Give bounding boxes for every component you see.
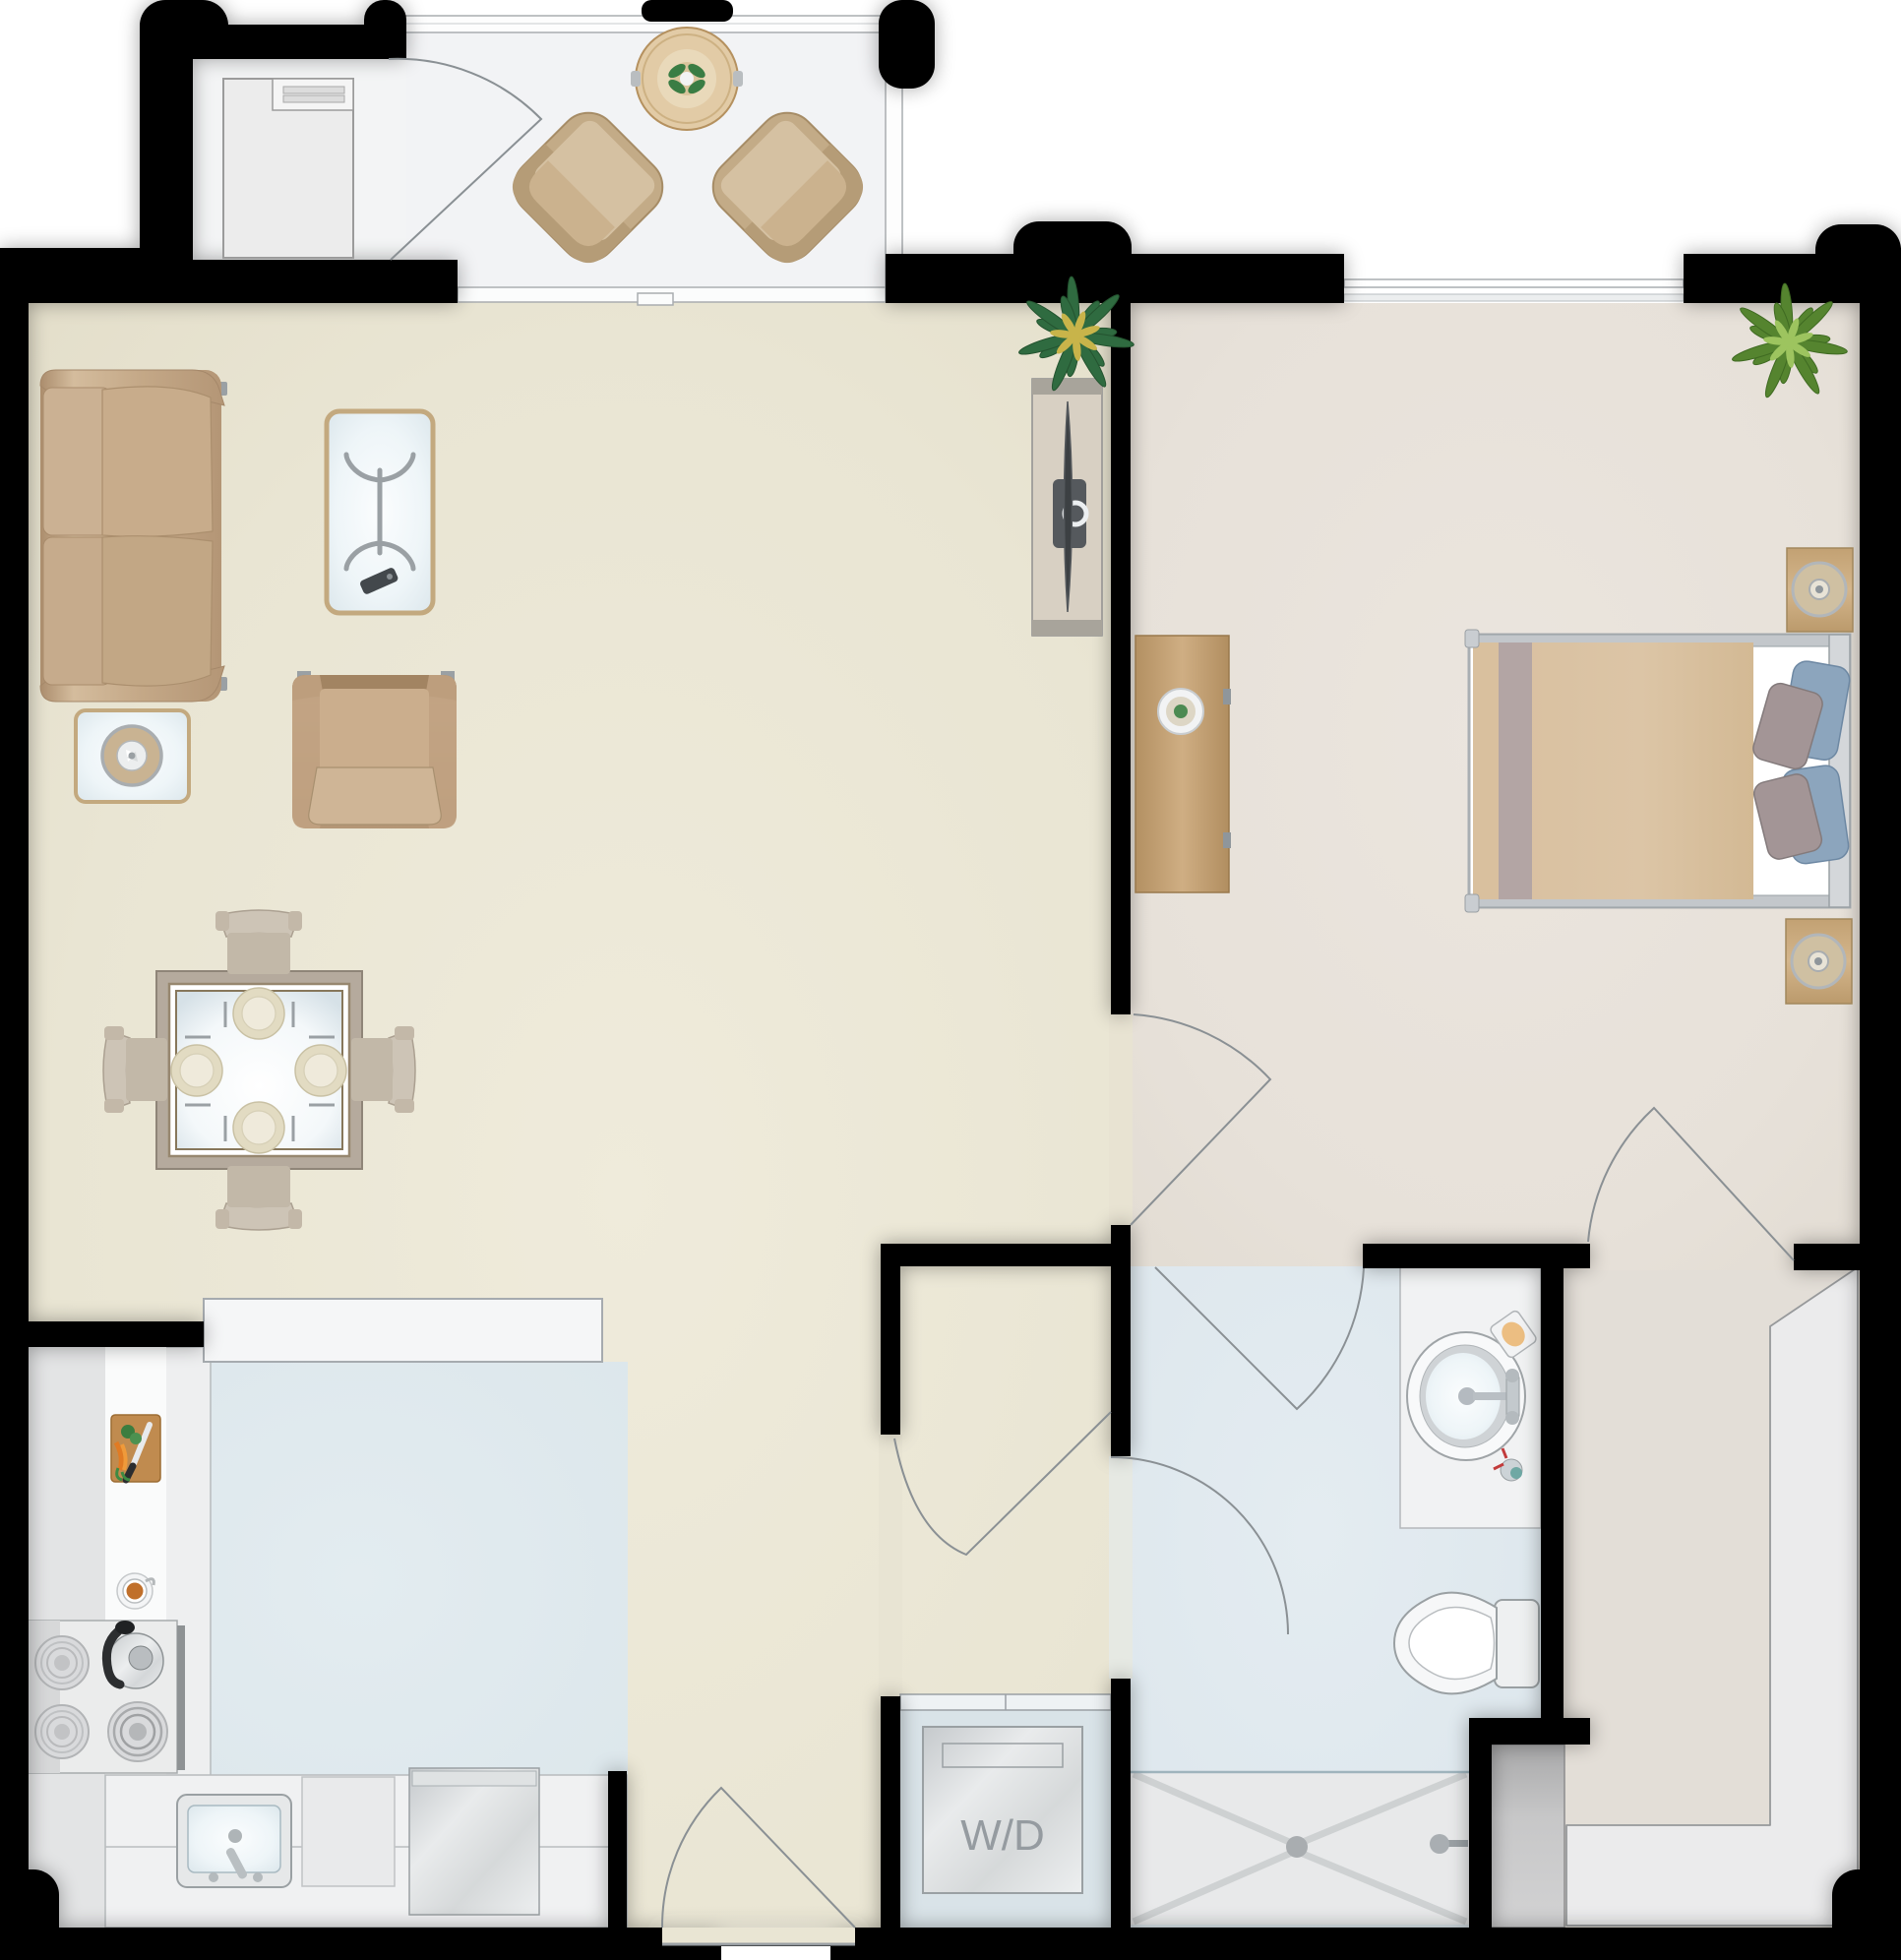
svg-text:W/D: W/D	[960, 1811, 1045, 1860]
